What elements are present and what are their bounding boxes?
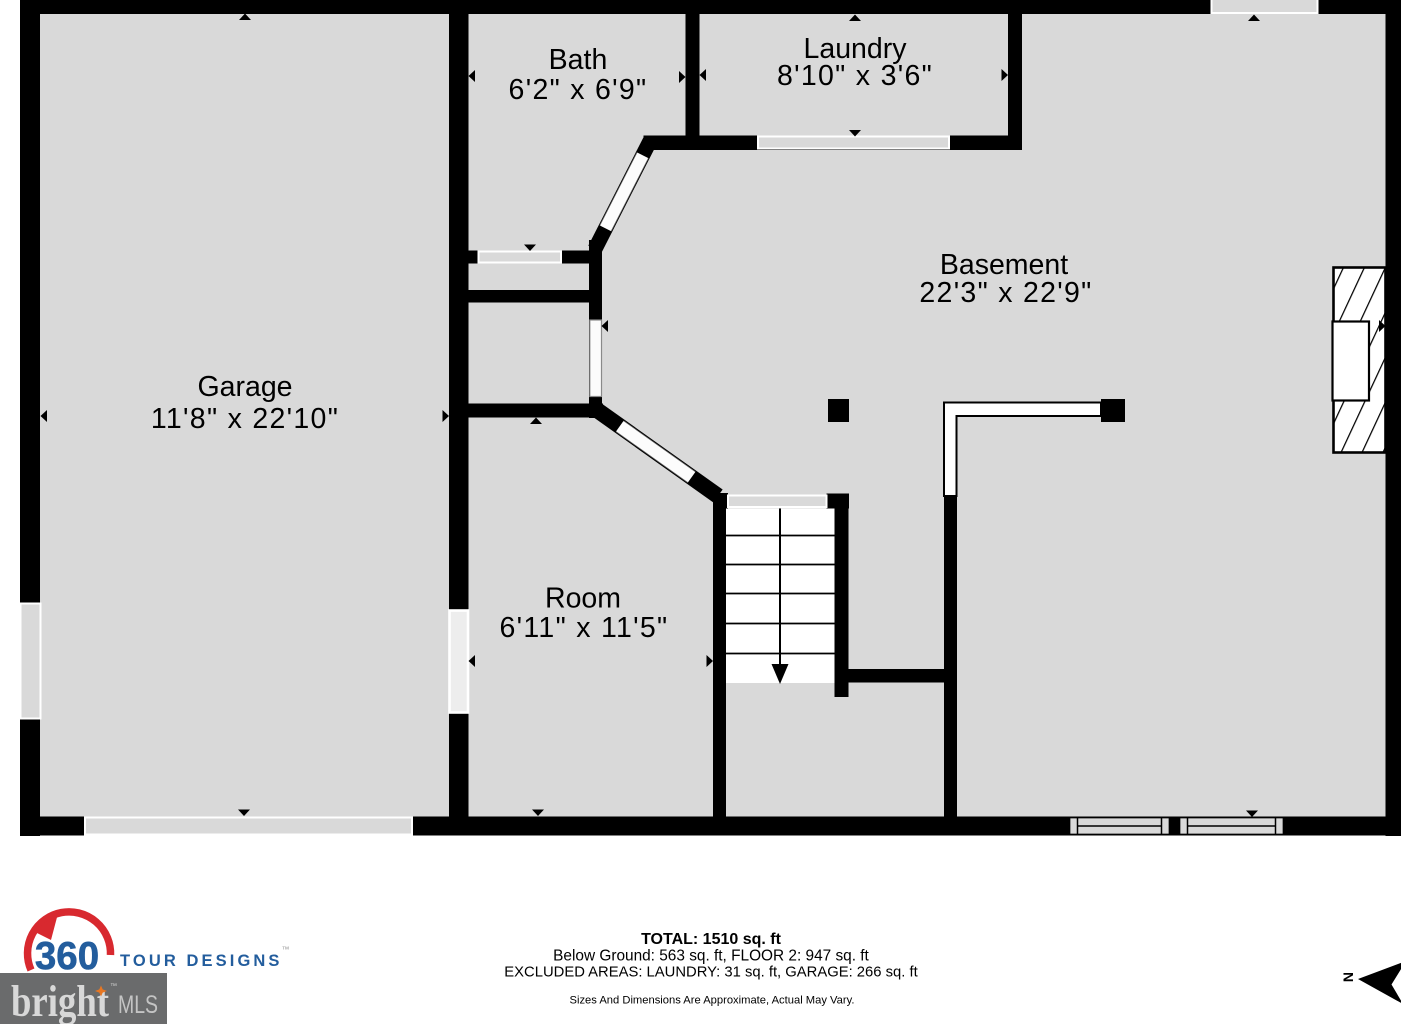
svg-text:6'2" x 6'9": 6'2" x 6'9" xyxy=(509,74,648,106)
svg-text:bright: bright xyxy=(11,977,109,1024)
svg-text:Below Ground: 563 sq. ft, FLOO: Below Ground: 563 sq. ft, FLOOR 2: 947 s… xyxy=(553,948,869,965)
svg-text:8'10" x 3'6": 8'10" x 3'6" xyxy=(777,60,933,92)
svg-text:™: ™ xyxy=(282,945,290,954)
svg-text:11'8" x 22'10": 11'8" x 22'10" xyxy=(151,403,339,435)
svg-text:Bath: Bath xyxy=(549,44,608,76)
svg-text:MLS: MLS xyxy=(118,991,158,1019)
svg-text:22'3" x 22'9": 22'3" x 22'9" xyxy=(919,277,1092,309)
svg-text:TOUR DESIGNS: TOUR DESIGNS xyxy=(120,952,283,970)
svg-text:Garage: Garage xyxy=(197,371,292,403)
svg-text:Room: Room xyxy=(545,583,621,615)
svg-text:360: 360 xyxy=(35,935,99,978)
svg-text:EXCLUDED AREAS: LAUNDRY: 31 sq: EXCLUDED AREAS: LAUNDRY: 31 sq. ft, GARA… xyxy=(504,965,917,981)
svg-text:TOTAL: 1510 sq. ft: TOTAL: 1510 sq. ft xyxy=(641,931,782,948)
svg-text:N: N xyxy=(1340,972,1356,982)
svg-text:™: ™ xyxy=(110,983,117,990)
svg-text:Sizes And Dimensions Are Appro: Sizes And Dimensions Are Approximate, Ac… xyxy=(570,995,855,1007)
svg-text:6'11" x 11'5": 6'11" x 11'5" xyxy=(500,612,669,644)
